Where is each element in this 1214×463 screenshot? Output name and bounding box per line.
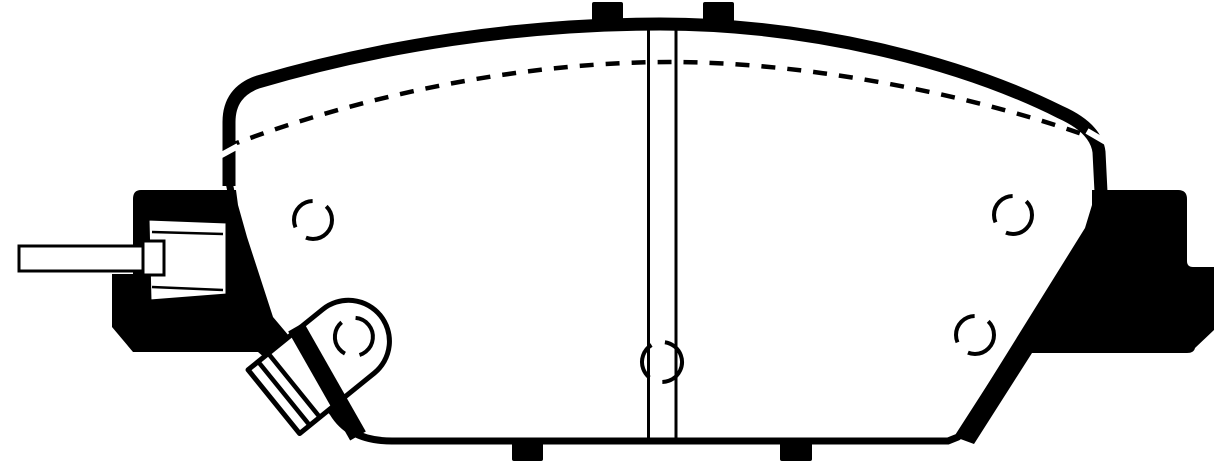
sensor-rod (19, 246, 148, 271)
bottom-tab-right (780, 440, 812, 461)
sensor-rod-cap (143, 241, 164, 275)
bottom-tab-left (512, 440, 543, 461)
brake-pad-diagram-canvas (0, 0, 1214, 463)
pad-drawing-svg (0, 0, 1214, 463)
